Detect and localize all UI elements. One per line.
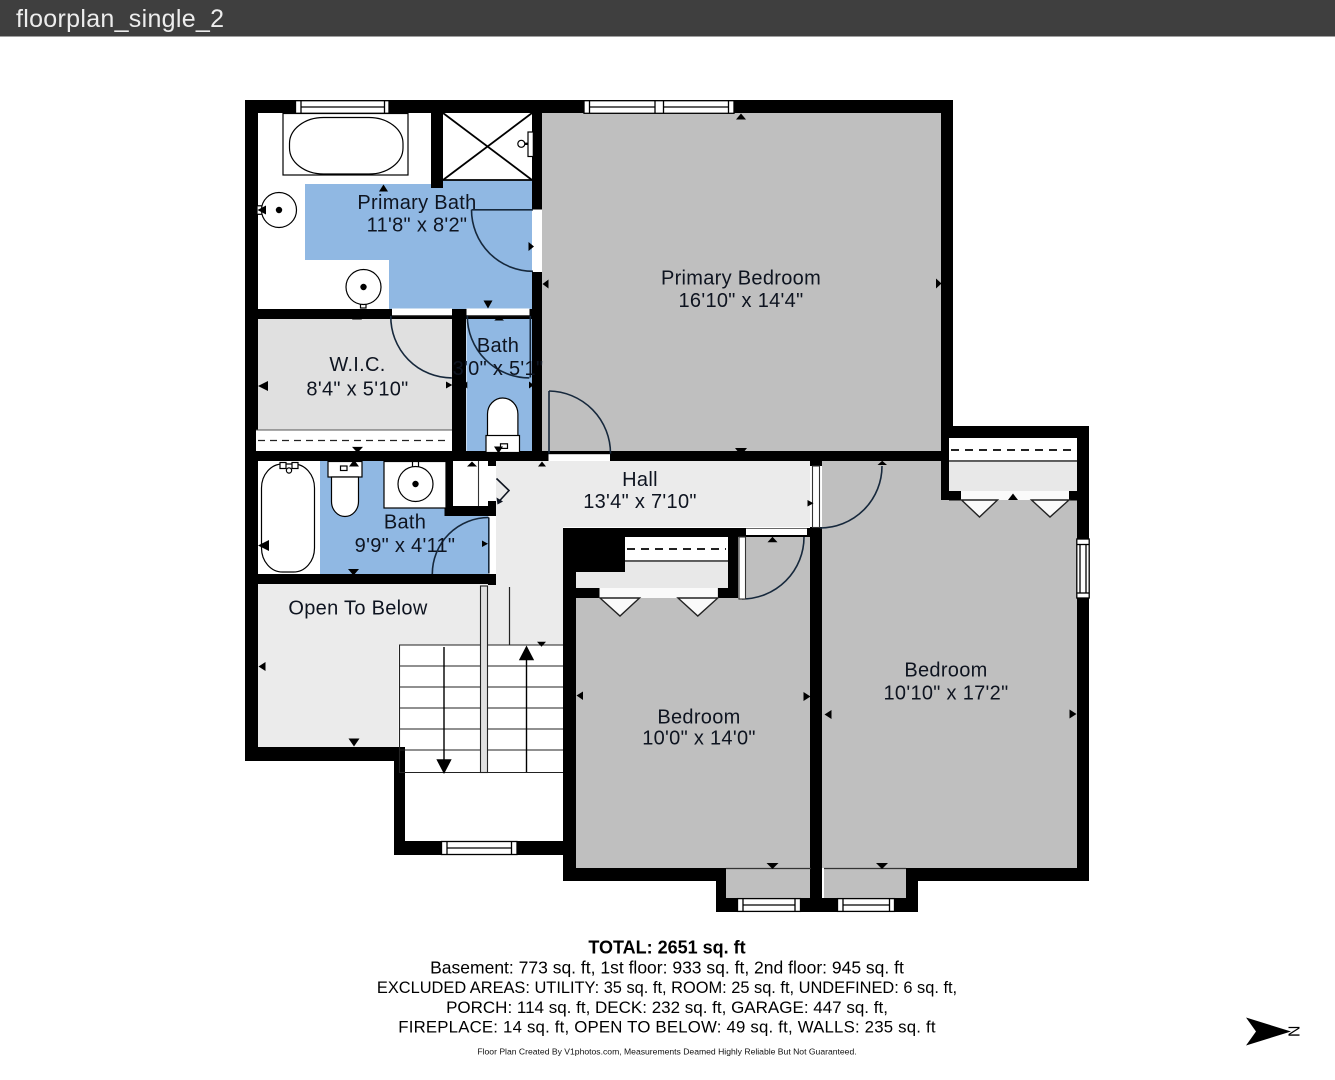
svg-text:8'4" x 5'10": 8'4" x 5'10" [306,379,408,401]
svg-text:Bath: Bath [384,512,426,534]
svg-text:10'10" x 17'2": 10'10" x 17'2" [883,683,1008,705]
svg-text:FIREPLACE: 14 sq. ft, OPEN TO: FIREPLACE: 14 sq. ft, OPEN TO BELOW: 49 … [398,1018,936,1037]
svg-text:3'0" x 5'1": 3'0" x 5'1" [453,358,544,380]
svg-text:EXCLUDED AREAS: UTILITY: 35 sq: EXCLUDED AREAS: UTILITY: 35 sq. ft, ROOM… [377,979,957,997]
svg-text:Bedroom: Bedroom [904,660,987,682]
svg-text:Basement: 773 sq. ft, 1st floo: Basement: 773 sq. ft, 1st floor: 933 sq.… [430,958,904,978]
svg-text:Primary Bath: Primary Bath [357,192,476,214]
svg-text:16'10" x 14'4": 16'10" x 14'4" [678,290,803,312]
svg-text:N: N [1285,1026,1302,1038]
svg-text:11'8" x 8'2": 11'8" x 8'2" [367,215,468,237]
svg-text:TOTAL: 2651 sq. ft: TOTAL: 2651 sq. ft [588,938,745,958]
svg-text:Primary Bedroom: Primary Bedroom [661,268,821,290]
svg-text:floorplan_single_2: floorplan_single_2 [16,5,224,33]
svg-text:W.I.C.: W.I.C. [329,354,385,376]
svg-text:10'0" x 14'0": 10'0" x 14'0" [642,728,756,750]
svg-text:Bath: Bath [477,335,519,357]
svg-text:Bedroom: Bedroom [657,707,740,729]
svg-text:Open To Below: Open To Below [288,598,427,620]
svg-text:Hall: Hall [622,469,658,491]
svg-text:9'9" x 4'11": 9'9" x 4'11" [355,535,456,557]
svg-text:Floor Plan Created By V1photos: Floor Plan Created By V1photos.com, Meas… [477,1047,856,1057]
svg-text:PORCH: 114 sq. ft, DECK: 232 s: PORCH: 114 sq. ft, DECK: 232 sq. ft, GAR… [446,998,888,1017]
svg-text:13'4" x 7'10": 13'4" x 7'10" [583,491,697,513]
